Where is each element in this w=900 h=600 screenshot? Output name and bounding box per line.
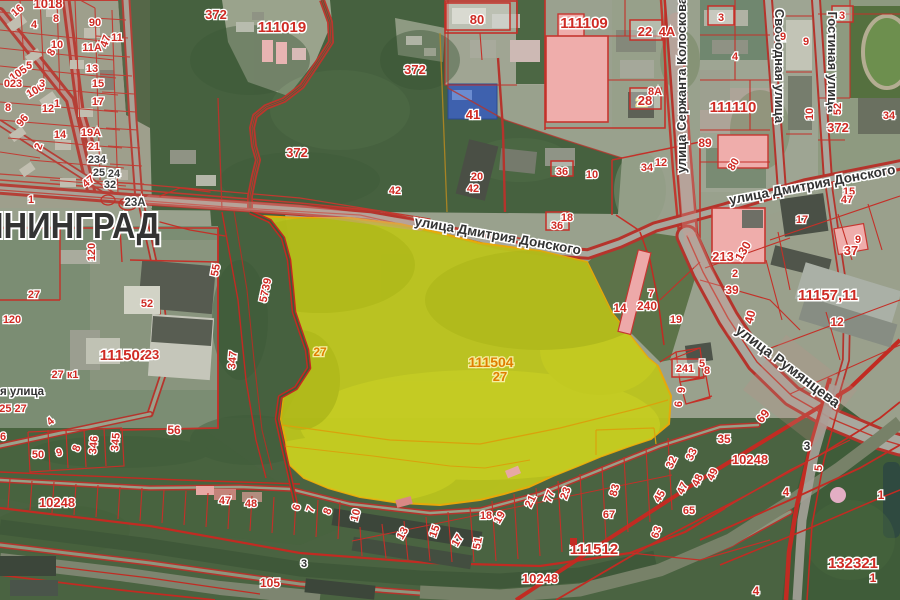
svg-text:372: 372 (205, 7, 227, 22)
svg-text:3: 3 (804, 439, 811, 453)
svg-text:27: 27 (493, 369, 507, 384)
svg-text:37: 37 (844, 243, 858, 258)
svg-text:10248: 10248 (39, 495, 75, 510)
svg-text:13: 13 (86, 63, 98, 75)
svg-text:1: 1 (870, 571, 877, 585)
svg-text:25 27: 25 27 (0, 403, 27, 415)
svg-text:я улица: я улица (0, 386, 45, 398)
svg-text:36: 36 (556, 166, 568, 178)
svg-text:2: 2 (732, 268, 738, 280)
svg-text:10248: 10248 (522, 571, 558, 586)
svg-text:9: 9 (780, 31, 786, 43)
svg-text:улица Сержанта Колоскова: улица Сержанта Колоскова (674, 0, 689, 173)
svg-text:10248: 10248 (732, 452, 768, 467)
svg-text:7: 7 (648, 288, 654, 300)
svg-text:240: 240 (637, 299, 657, 313)
svg-text:8: 8 (5, 102, 11, 114)
svg-text:9: 9 (803, 36, 809, 48)
svg-text:Гостиная улица: Гостиная улица (825, 11, 840, 113)
svg-text:10: 10 (804, 108, 816, 120)
svg-text:14: 14 (613, 301, 627, 315)
svg-text:41: 41 (466, 107, 480, 122)
svg-text:14: 14 (54, 129, 67, 141)
svg-text:111110: 111110 (710, 99, 757, 116)
svg-text:241: 241 (676, 363, 694, 375)
svg-text:18: 18 (561, 212, 573, 224)
svg-text:48: 48 (245, 498, 257, 510)
svg-text:3: 3 (301, 558, 307, 570)
svg-text:11157,11: 11157,11 (798, 287, 858, 304)
svg-text:42: 42 (389, 185, 401, 197)
svg-text:15: 15 (92, 78, 104, 90)
svg-text:17: 17 (796, 214, 808, 226)
svg-text:23: 23 (145, 347, 159, 362)
svg-text:1: 1 (54, 98, 60, 110)
svg-text:25: 25 (93, 167, 105, 179)
svg-text:372: 372 (286, 145, 308, 160)
svg-text:21: 21 (88, 141, 100, 153)
svg-text:105: 105 (260, 576, 280, 590)
svg-text:18: 18 (480, 510, 492, 522)
svg-text:4: 4 (783, 485, 790, 499)
svg-text:ИНИНГРАД: ИНИНГРАД (0, 205, 160, 246)
svg-text:120: 120 (86, 243, 98, 261)
svg-text:4: 4 (31, 19, 38, 31)
svg-text:12: 12 (655, 157, 667, 169)
svg-text:111504: 111504 (468, 354, 513, 370)
svg-text:120: 120 (3, 314, 21, 326)
svg-text:1: 1 (878, 488, 885, 502)
svg-text:8: 8 (53, 13, 59, 25)
svg-text:5: 5 (813, 465, 825, 472)
svg-text:89: 89 (698, 136, 712, 150)
svg-text:34: 34 (883, 110, 896, 122)
svg-text:80: 80 (470, 12, 484, 27)
svg-text:1: 1 (28, 194, 34, 206)
svg-text:90: 90 (89, 17, 101, 29)
svg-text:12: 12 (830, 315, 844, 329)
svg-text:Свободная улица: Свободная улица (772, 9, 787, 124)
svg-text:4: 4 (753, 584, 760, 598)
svg-text:23А: 23А (124, 197, 145, 209)
svg-text:10: 10 (586, 169, 598, 181)
svg-text:39: 39 (725, 283, 739, 297)
svg-text:27: 27 (28, 289, 40, 301)
svg-text:47: 47 (841, 194, 853, 206)
svg-text:8А: 8А (648, 86, 662, 98)
svg-text:27 к1: 27 к1 (52, 369, 79, 381)
svg-text:3: 3 (718, 12, 724, 24)
svg-text:50: 50 (32, 449, 44, 461)
svg-text:27: 27 (313, 345, 327, 359)
svg-text:346: 346 (87, 435, 101, 454)
svg-text:52: 52 (141, 298, 153, 310)
svg-text:32: 32 (104, 179, 116, 191)
svg-text:372: 372 (404, 62, 426, 77)
svg-text:47: 47 (219, 495, 231, 507)
svg-text:213: 213 (712, 249, 734, 264)
svg-text:6: 6 (673, 401, 685, 408)
svg-text:9: 9 (676, 387, 688, 394)
svg-text:35: 35 (717, 432, 731, 446)
svg-text:132321: 132321 (828, 555, 878, 572)
svg-text:52: 52 (832, 103, 844, 115)
svg-text:65: 65 (683, 505, 695, 517)
svg-text:67: 67 (603, 509, 615, 521)
svg-text:42: 42 (467, 183, 479, 195)
svg-text:347: 347 (226, 350, 240, 369)
svg-text:4А: 4А (659, 24, 676, 39)
svg-text:20: 20 (471, 171, 483, 183)
svg-text:3: 3 (39, 78, 45, 90)
svg-text:111512: 111512 (570, 541, 618, 558)
svg-text:372: 372 (827, 120, 849, 135)
svg-text:10: 10 (51, 39, 63, 51)
svg-text:111019: 111019 (258, 19, 306, 36)
svg-text:023: 023 (4, 78, 22, 90)
svg-text:234: 234 (88, 154, 107, 166)
svg-text:51: 51 (471, 536, 485, 550)
svg-text:17: 17 (92, 96, 104, 108)
svg-text:55: 55 (209, 263, 223, 277)
svg-text:8: 8 (704, 365, 710, 377)
svg-text:4: 4 (732, 51, 739, 63)
svg-text:34: 34 (641, 162, 654, 174)
svg-text:345: 345 (109, 432, 123, 451)
svg-text:1018: 1018 (34, 0, 63, 11)
svg-text:111502: 111502 (100, 347, 148, 364)
svg-text:6: 6 (0, 431, 6, 443)
svg-text:111109: 111109 (560, 15, 608, 32)
svg-text:19: 19 (670, 314, 682, 326)
svg-text:22: 22 (638, 24, 652, 39)
svg-text:12: 12 (42, 103, 54, 115)
svg-text:56: 56 (167, 423, 181, 437)
svg-text:19А: 19А (81, 127, 101, 139)
svg-text:3: 3 (839, 10, 845, 22)
